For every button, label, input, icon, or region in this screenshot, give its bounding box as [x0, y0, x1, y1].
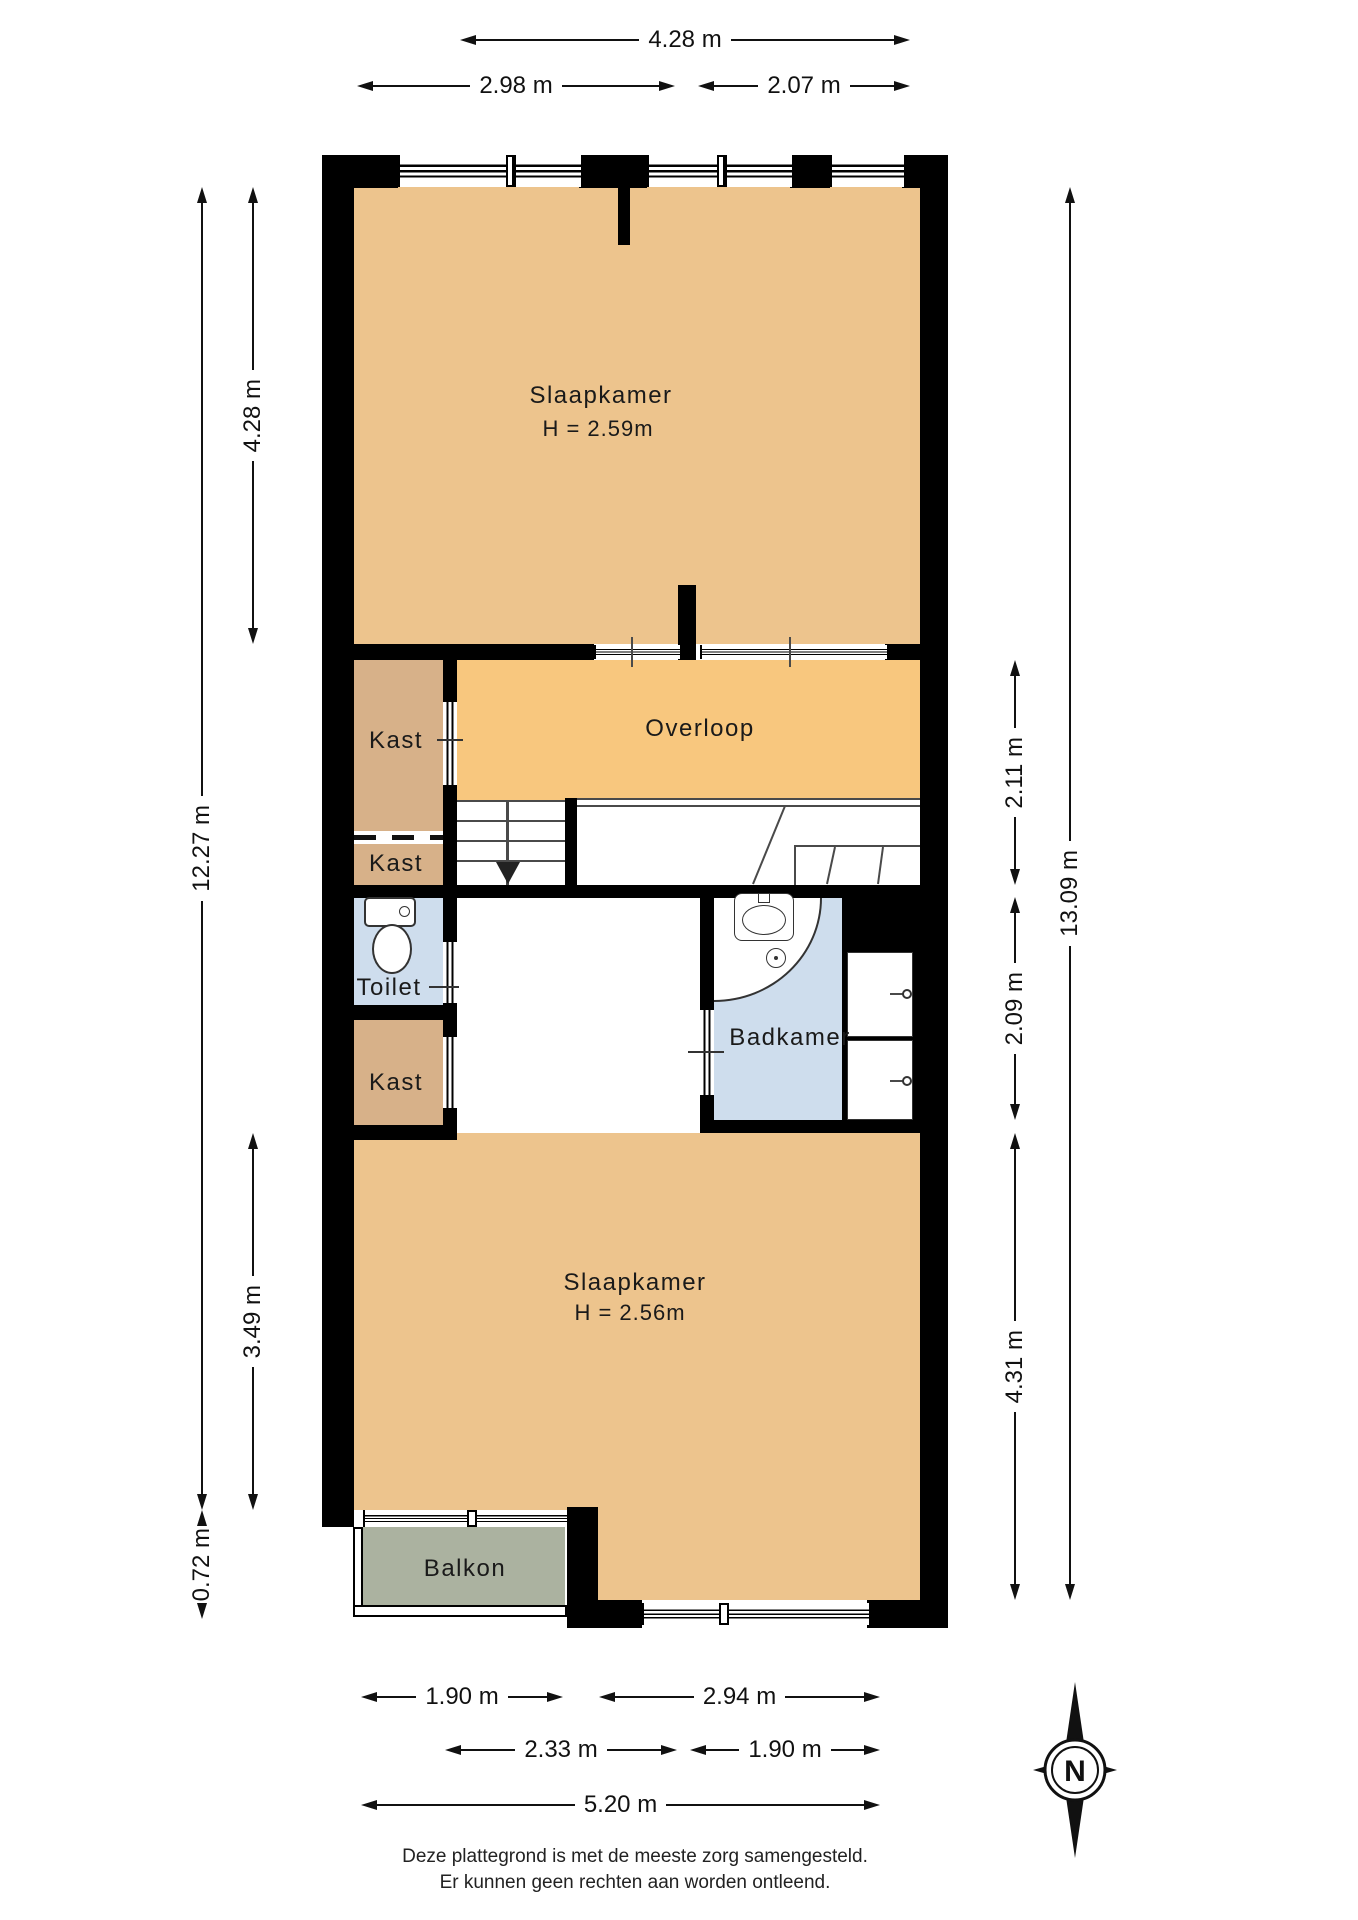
wall-balkon-block: [567, 1507, 598, 1628]
sink-tap-icon: [758, 893, 770, 903]
cabinet-key-ring-1: [902, 989, 912, 999]
label-kast-3: Kast: [369, 1069, 423, 1097]
dim-bottom-left: 2.33 m: [445, 1735, 677, 1765]
window-mullion-1: [506, 155, 514, 187]
wall-slaapkamer-overloop-right: [885, 644, 920, 660]
window-bottom: [642, 1603, 871, 1625]
dim-right-badkamer: 2.09 m: [1000, 897, 1030, 1120]
interior-window-1: [594, 645, 682, 659]
balkon-wall-bottom: [353, 1605, 567, 1617]
window-top-5: [830, 155, 906, 187]
compass-north-label: N: [1064, 1755, 1086, 1788]
wall-kast-column-a: [443, 660, 457, 702]
floorplan-page: Slaapkamer H = 2.59m Overloop Kast Kast …: [0, 0, 1358, 1920]
dim-right-room: 4.31 m: [1000, 1133, 1030, 1600]
window-bottom-mullion: [719, 1603, 729, 1625]
disclaimer-line-1: Deze plattegrond is met de meeste zorg s…: [0, 1846, 1270, 1868]
stair-tread-2: [457, 820, 565, 822]
wall-badkamer-left-a: [700, 898, 714, 1008]
label-slaapkamer-top-height: H = 2.59m: [542, 416, 653, 442]
wall-toilet-right-a: [443, 898, 457, 942]
dim-right-total: 13.09 m: [1055, 187, 1085, 1600]
wall-bottom-left-seg: [598, 1600, 642, 1628]
dim-bottom-balkon: 1.90 m: [361, 1682, 563, 1712]
toilet-button: [399, 906, 410, 917]
dim-right-overloop: 2.11 m: [1000, 660, 1030, 885]
leader-toilet: [429, 986, 459, 988]
label-overloop: Overloop: [645, 715, 754, 743]
wall-stub-top: [618, 187, 630, 245]
label-balkon: Balkon: [424, 1555, 506, 1583]
label-kast-1: Kast: [369, 727, 423, 755]
sink-basin: [742, 905, 786, 935]
dim-top-left: 2.98 m: [357, 71, 675, 101]
wall-slaapkamer-overloop-left: [354, 644, 594, 660]
leader-kast-1: [437, 739, 463, 741]
window-top-4: [725, 155, 794, 187]
label-slaapkamer-bottom-height: H = 2.56m: [574, 1300, 685, 1326]
wall-right: [920, 155, 948, 1628]
compass-icon: N: [1008, 1680, 1142, 1860]
dim-top-total: 4.28 m: [460, 25, 910, 55]
door-badkamer: [700, 1008, 714, 1099]
disclaimer-line-2: Er kunnen geen rechten aan worden ontlee…: [0, 1872, 1270, 1894]
dim-bottom-total: 5.20 m: [361, 1790, 880, 1820]
stair-divider-wall: [565, 798, 577, 885]
label-kast-2: Kast: [369, 850, 423, 878]
balkon-wall-left: [353, 1527, 363, 1617]
window-top-3: [647, 155, 721, 187]
window-top-1: [398, 155, 510, 187]
balkon-door-mullion: [467, 1510, 477, 1527]
dim-left-total: 12.27 m: [187, 187, 217, 1510]
door-kast-3: [443, 1035, 457, 1114]
wall-top-corner-left: [322, 155, 398, 188]
window-tick-1: [631, 637, 633, 667]
floor-slaapkamer-bottom-lower: [598, 1510, 920, 1600]
stair-winder-diagonals: [735, 800, 925, 890]
wall-top-pier-right: [790, 155, 830, 188]
window-tick-2: [789, 637, 791, 667]
dim-left-balkon: 0.72 m: [187, 1510, 217, 1617]
wall-left: [322, 155, 354, 1527]
dim-bottom-right: 1.90 m: [690, 1735, 880, 1765]
label-badkamer: Badkamer: [729, 1024, 850, 1052]
kast-divider-dashed: [354, 831, 443, 844]
door-toilet: [443, 940, 457, 1009]
label-slaapkamer-bottom: Slaapkamer: [563, 1269, 706, 1297]
cabinet-key-ring-2: [902, 1076, 912, 1086]
door-kast-1: [443, 700, 457, 791]
dim-top-right: 2.07 m: [698, 71, 910, 101]
stair-down-arrow-icon: [496, 862, 520, 884]
wall-top-pier: [579, 155, 647, 188]
stair-tread-3: [457, 840, 565, 842]
toilet-bowl: [372, 924, 412, 974]
wall-kast-column-b: [443, 785, 457, 886]
window-mullion-2: [717, 155, 725, 187]
shower-drain-dot: [774, 956, 778, 960]
leader-badkamer: [688, 1051, 724, 1053]
dim-left-room-top: 4.28 m: [238, 187, 268, 644]
wall-toilet-kast3: [354, 1005, 457, 1020]
dim-bottom-window: 2.94 m: [599, 1682, 880, 1712]
dim-left-room-bottom: 3.49 m: [238, 1133, 268, 1510]
window-top-2: [514, 155, 583, 187]
wall-kast3-bottom: [354, 1125, 457, 1140]
stair-tread-1: [457, 800, 565, 802]
wall-bottom-right-seg: [867, 1600, 920, 1628]
label-slaapkamer-top: Slaapkamer: [529, 382, 672, 410]
label-toilet: Toilet: [356, 974, 421, 1002]
interior-window-2: [700, 645, 889, 659]
